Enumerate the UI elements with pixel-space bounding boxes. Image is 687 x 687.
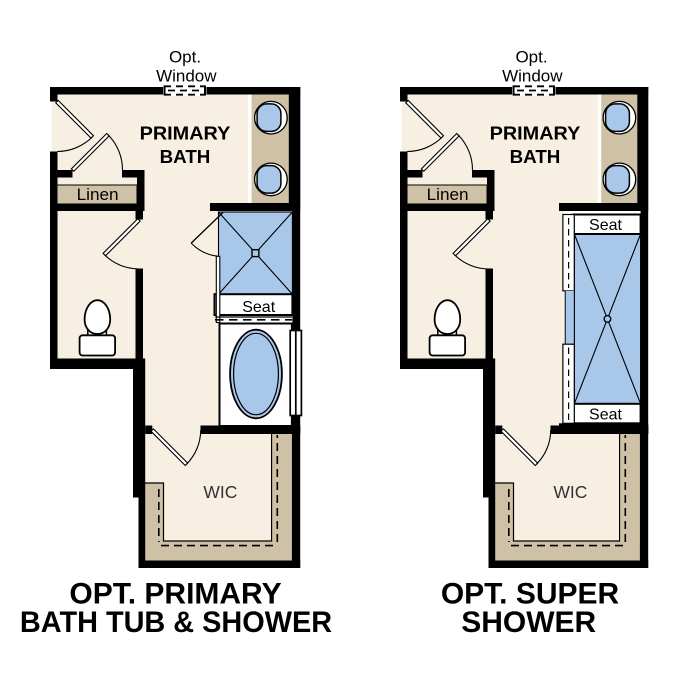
svg-text:SHOWER: SHOWER xyxy=(461,606,596,639)
svg-text:Linen: Linen xyxy=(427,185,469,204)
svg-text:Opt.: Opt. xyxy=(515,48,547,67)
svg-text:PRIMARY: PRIMARY xyxy=(140,123,232,144)
svg-text:WIC: WIC xyxy=(203,482,237,502)
svg-text:Window: Window xyxy=(502,67,563,86)
svg-text:Linen: Linen xyxy=(77,185,119,204)
svg-text:Seat: Seat xyxy=(589,217,622,234)
svg-text:BATH TUB & SHOWER: BATH TUB & SHOWER xyxy=(20,606,333,639)
svg-text:Opt.: Opt. xyxy=(169,48,201,67)
svg-text:Seat: Seat xyxy=(242,299,275,316)
svg-text:PRIMARY: PRIMARY xyxy=(490,123,582,144)
svg-text:BATH: BATH xyxy=(510,146,561,167)
svg-text:BATH: BATH xyxy=(160,146,211,167)
svg-text:WIC: WIC xyxy=(553,482,587,502)
svg-text:Window: Window xyxy=(156,67,217,86)
svg-text:Seat: Seat xyxy=(589,406,622,423)
